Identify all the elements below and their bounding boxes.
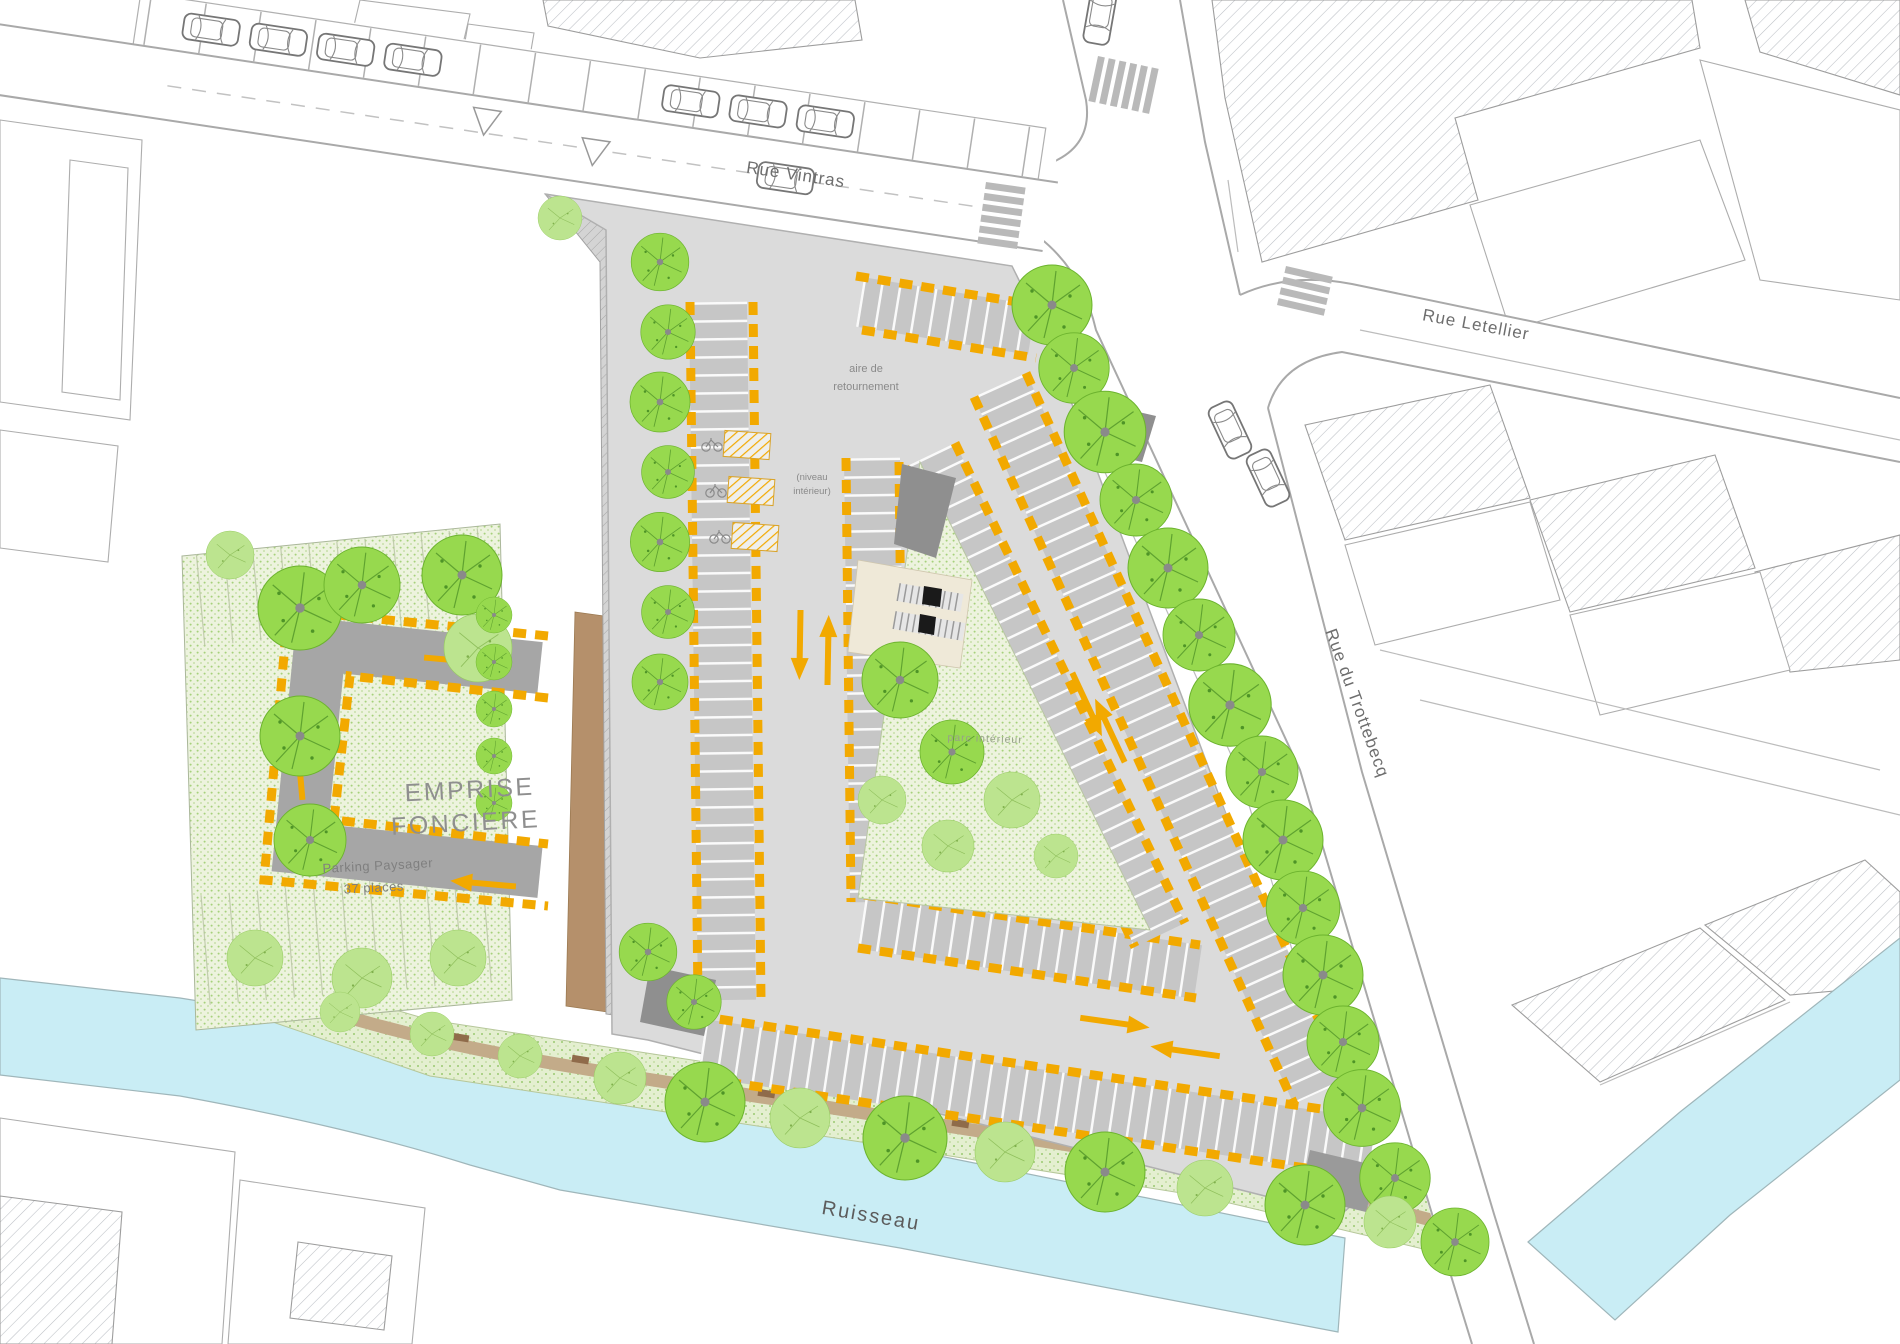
tree-icon	[667, 975, 721, 1029]
tree-icon	[1283, 935, 1363, 1015]
tree-icon	[665, 1062, 745, 1142]
emprise-fonciere-parking: EMPRISE FONCIERE Parking Paysager 37 pla…	[182, 524, 548, 1030]
tree-icon	[1266, 871, 1340, 945]
tree-icon	[863, 1096, 947, 1180]
interior-note-line2: intérieur)	[793, 486, 831, 497]
tree-icon	[922, 820, 974, 872]
tree-icon	[1034, 834, 1078, 878]
tree-icon	[1064, 391, 1146, 473]
tree-icon	[641, 305, 695, 359]
tree-icon	[632, 654, 688, 710]
tree-icon	[498, 1034, 542, 1078]
tree-icon	[1265, 1165, 1345, 1245]
tree-icon	[1421, 1208, 1489, 1276]
tree-icon	[1226, 736, 1298, 808]
tree-icon	[770, 1088, 830, 1148]
tree-icon	[476, 691, 512, 727]
turnaround-label-line2: retournement	[833, 381, 898, 393]
tree-icon	[538, 196, 582, 240]
tree-icon	[476, 738, 512, 774]
tree-icon	[320, 992, 360, 1032]
tree-icon	[630, 372, 690, 432]
site-plan-page: EMPRISE FONCIERE Parking Paysager 37 pla…	[0, 0, 1900, 1344]
tree-icon	[642, 586, 695, 639]
tree-icon	[862, 642, 938, 718]
tree-icon	[1128, 528, 1208, 608]
tree-icon	[594, 1052, 646, 1104]
tree-icon	[227, 930, 283, 986]
tree-icon	[984, 772, 1040, 828]
tree-icon	[260, 696, 340, 776]
tree-icon	[1177, 1160, 1233, 1216]
tree-icon	[858, 776, 906, 824]
tree-icon	[975, 1122, 1035, 1182]
tree-icon	[642, 446, 695, 499]
interior-note-line1: (niveau	[796, 472, 827, 483]
tree-icon	[206, 531, 254, 579]
emprise-label-line1: EMPRISE	[404, 773, 535, 808]
tree-icon	[476, 644, 512, 680]
tree-icon	[631, 233, 689, 291]
tree-icon	[1100, 464, 1172, 536]
tree-icon	[1364, 1196, 1416, 1248]
tree-icon	[430, 930, 486, 986]
tree-icon	[630, 512, 689, 571]
tree-icon	[1163, 599, 1235, 671]
site-plan-drawing: EMPRISE FONCIERE Parking Paysager 37 pla…	[0, 0, 1900, 1344]
tree-icon	[1189, 664, 1271, 746]
turnaround-label-line1: aire de	[849, 363, 883, 375]
parking-label-line2: 37 places	[343, 878, 404, 896]
tree-icon	[1243, 800, 1323, 880]
tree-icon	[1307, 1006, 1379, 1078]
tree-icon	[1324, 1070, 1401, 1147]
tree-icon	[619, 923, 677, 981]
tree-icon	[920, 720, 984, 784]
tree-icon	[1065, 1132, 1145, 1212]
tree-icon	[324, 547, 400, 623]
tree-icon	[410, 1012, 454, 1056]
tree-icon	[476, 597, 512, 633]
